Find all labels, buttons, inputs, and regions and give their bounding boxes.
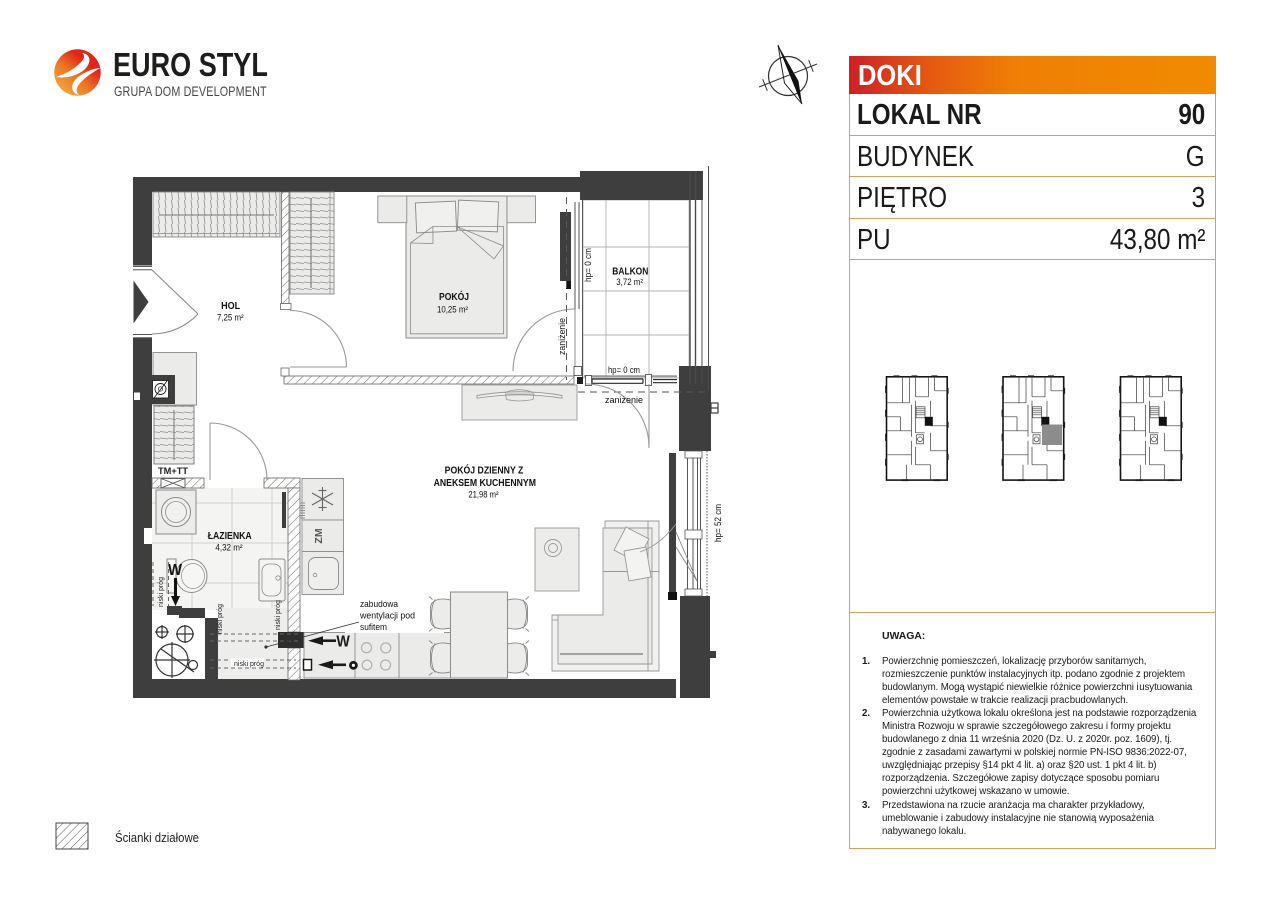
svg-text:ZM: ZM bbox=[313, 528, 325, 543]
svg-text:W: W bbox=[336, 634, 350, 651]
svg-text:niski próg: niski próg bbox=[217, 604, 224, 634]
svg-text:zaniżenie: zaniżenie bbox=[557, 318, 568, 355]
svg-text:niski próg: niski próg bbox=[158, 577, 165, 607]
svg-text:Ścianki działowe: Ścianki działowe bbox=[115, 830, 199, 845]
svg-text:7,25 m²: 7,25 m² bbox=[217, 313, 244, 323]
svg-text:zabudowa: zabudowa bbox=[360, 599, 399, 610]
svg-text:HOL: HOL bbox=[221, 301, 240, 312]
svg-text:POKÓJ DZIENNY Z: POKÓJ DZIENNY Z bbox=[445, 464, 524, 477]
svg-text:W: W bbox=[168, 562, 183, 579]
svg-text:10,25 m²: 10,25 m² bbox=[437, 305, 468, 315]
svg-text:ANEKSEM KUCHENNYM: ANEKSEM KUCHENNYM bbox=[434, 478, 536, 489]
svg-text:wentylacji pod: wentylacji pod bbox=[359, 611, 415, 622]
svg-text:hp= 52 cm: hp= 52 cm bbox=[713, 504, 723, 542]
svg-text:ŁAZIENKA: ŁAZIENKA bbox=[208, 530, 252, 542]
svg-text:POKÓJ: POKÓJ bbox=[439, 290, 469, 303]
svg-text:zaniżenie: zaniżenie bbox=[605, 395, 643, 406]
svg-text:4,32 m²: 4,32 m² bbox=[215, 543, 242, 553]
svg-text:21,98 m²: 21,98 m² bbox=[468, 490, 498, 500]
svg-text:hp= 0 cm: hp= 0 cm bbox=[583, 248, 593, 282]
svg-text:niski próg: niski próg bbox=[234, 661, 264, 668]
svg-text:BALKON: BALKON bbox=[612, 267, 648, 278]
svg-text:niski próg: niski próg bbox=[275, 600, 282, 630]
svg-text:3,72 m²: 3,72 m² bbox=[616, 277, 643, 287]
svg-text:sufitem: sufitem bbox=[360, 622, 387, 633]
svg-text:TM+TT: TM+TT bbox=[158, 466, 188, 477]
svg-text:hp= 0 cm: hp= 0 cm bbox=[608, 365, 640, 375]
